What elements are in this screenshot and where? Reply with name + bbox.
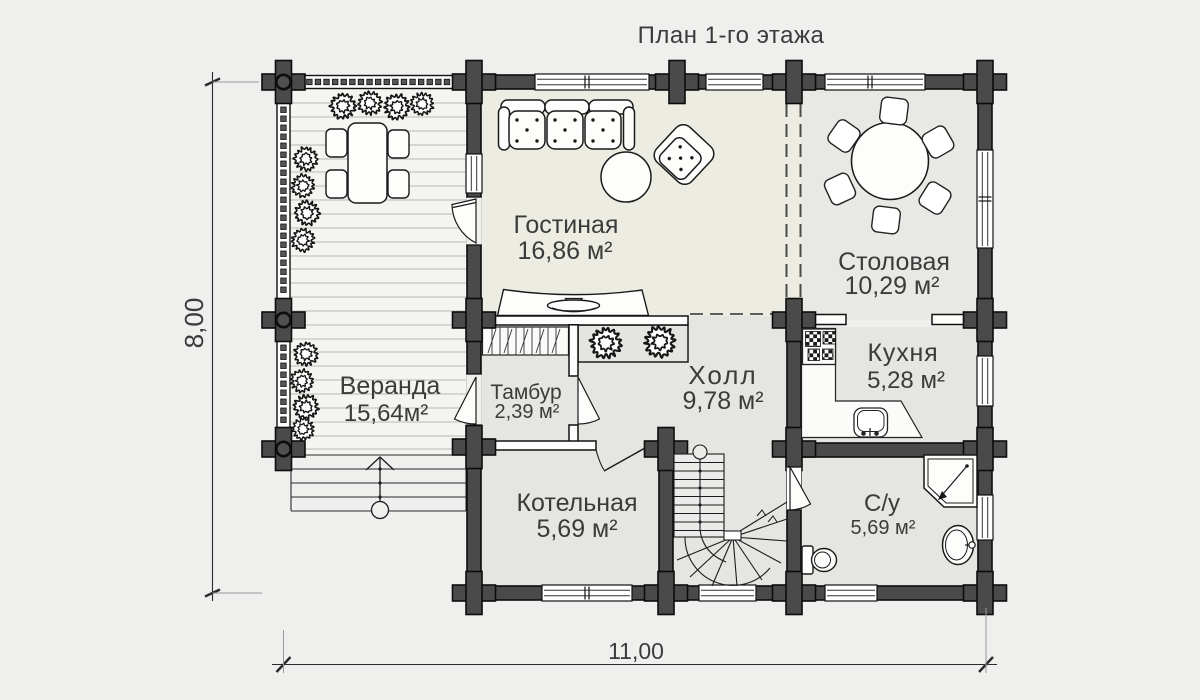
svg-text:11,00: 11,00 xyxy=(608,638,664,664)
svg-text:15,64м²: 15,64м² xyxy=(344,400,429,427)
svg-text:5,28 м²: 5,28 м² xyxy=(867,367,945,394)
svg-text:Холл: Холл xyxy=(688,360,757,390)
svg-text:Веранда: Веранда xyxy=(340,372,441,400)
svg-text:План 1-го этажа: План 1-го этажа xyxy=(638,22,825,49)
svg-text:Гостиная: Гостиная xyxy=(514,211,619,239)
svg-text:5,69 м²: 5,69 м² xyxy=(851,517,916,539)
svg-text:Кухня: Кухня xyxy=(868,339,939,367)
svg-text:16,86 м²: 16,86 м² xyxy=(517,237,612,265)
svg-text:Котельная: Котельная xyxy=(516,489,637,517)
svg-text:2,39 м²: 2,39 м² xyxy=(495,401,560,423)
svg-text:С/у: С/у xyxy=(864,490,900,517)
svg-text:5,69 м²: 5,69 м² xyxy=(536,515,617,543)
svg-text:10,29 м²: 10,29 м² xyxy=(844,272,939,300)
svg-text:9,78 м²: 9,78 м² xyxy=(682,387,763,415)
svg-text:8,00: 8,00 xyxy=(179,298,209,349)
